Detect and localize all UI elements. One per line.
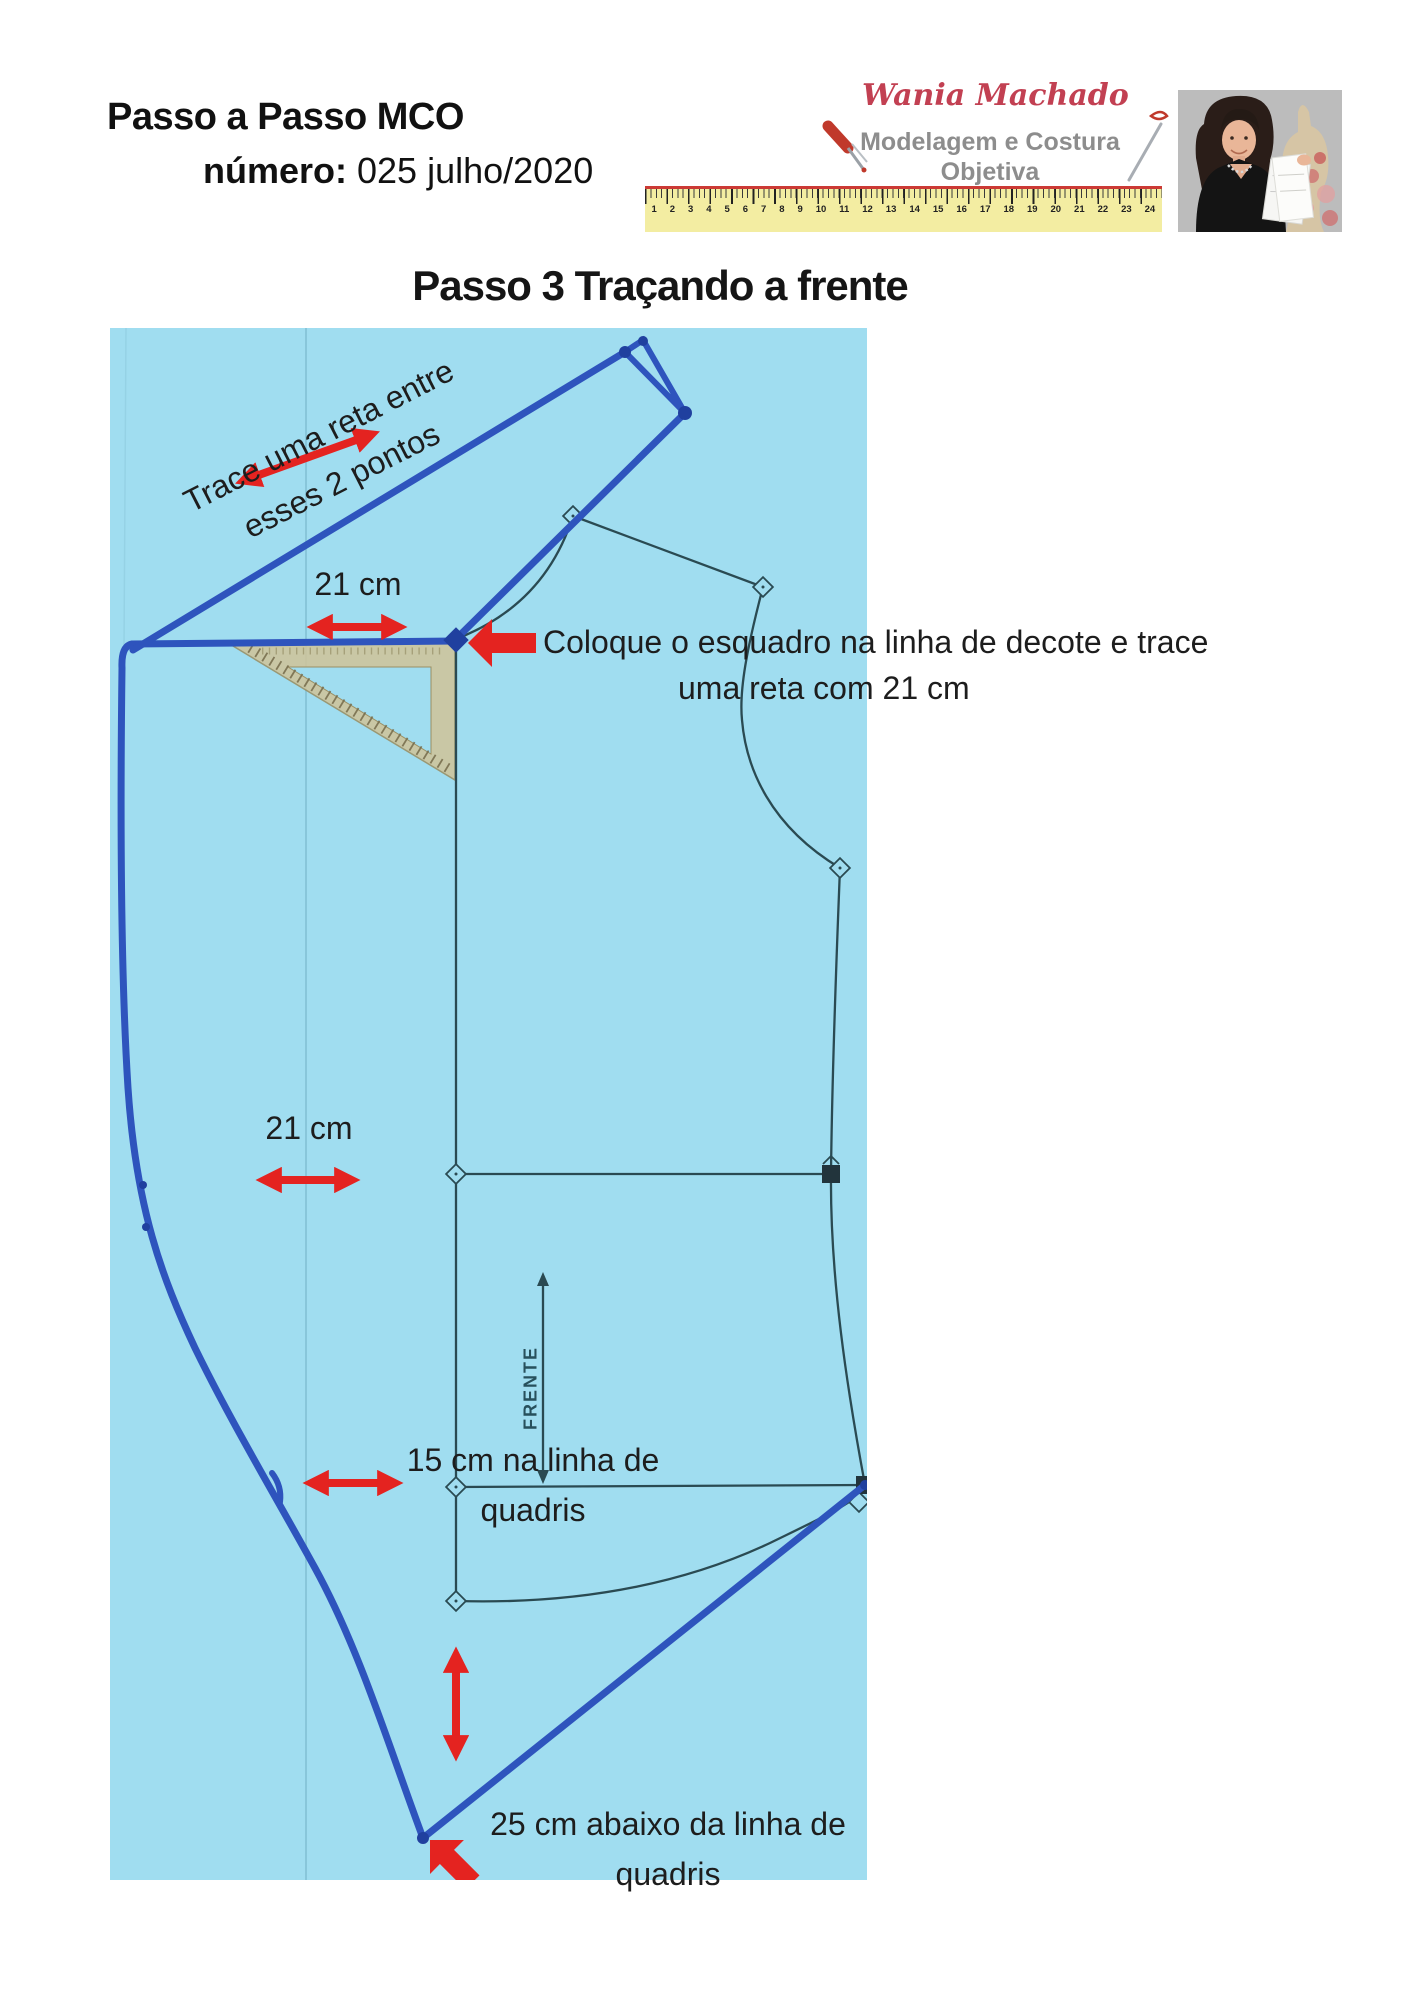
ruler-number: 3 (688, 204, 693, 215)
ruler-number: 23 (1121, 204, 1132, 215)
ruler-number: 17 (980, 204, 991, 215)
ruler-number: 21 (1074, 204, 1085, 215)
ruler-major-ticks (645, 189, 1162, 204)
page: { "header": { "title": "Passo a Passo MC… (0, 0, 1414, 2000)
logo-tagline-2: Objetiva (852, 158, 1128, 187)
ruler-numbers: 123456789101112131415161718192021222324 (645, 204, 1162, 215)
neck-and-left-side-line (121, 641, 456, 1838)
instructor-photo (1178, 90, 1342, 232)
set-square (228, 643, 455, 780)
annotation-esquadro-line2: uma reta com 21 cm (678, 670, 970, 707)
frente-arrowhead-up (537, 1272, 549, 1286)
ruler-number: 1 (651, 204, 656, 215)
step-title: Passo 3 Traçando a frente (340, 262, 980, 310)
annotation-15cm-line1: 15 cm na linha de (383, 1442, 683, 1479)
shoulder-line (573, 516, 763, 587)
annotation-25cm-line1: 25 cm abaixo da linha de (468, 1806, 868, 1843)
ruler-number: 11 (839, 204, 849, 215)
ruler-number: 16 (956, 204, 967, 215)
ruler-number: 24 (1145, 204, 1156, 215)
waist-square-marker (822, 1165, 840, 1183)
ruler-number: 2 (670, 204, 675, 215)
ruler-number: 4 (706, 204, 711, 215)
ruler-number: 10 (816, 204, 827, 215)
ruler-number: 5 (724, 204, 729, 215)
annotation-esquadro-line1: Coloque o esquadro na linha de decote e … (543, 624, 1208, 661)
annotation-15cm-line2: quadris (383, 1492, 683, 1529)
top-triangle (625, 340, 685, 413)
label-21cm-waist: 21 cm (250, 1110, 368, 1147)
logo-name: Wania Machado (862, 78, 1118, 113)
annotation-25cm-line2: quadris (468, 1856, 868, 1893)
ruler-number: 18 (1003, 204, 1014, 215)
ruler-number: 13 (886, 204, 897, 215)
logo-tagline-1: Modelagem e Costura (852, 128, 1128, 157)
ruler-number: 20 (1051, 204, 1062, 215)
ruler-graphic: 123456789101112131415161718192021222324 (645, 186, 1162, 232)
ruler-number: 14 (909, 204, 920, 215)
hip-to-hem-diagonal (423, 1485, 865, 1838)
solid-arrow-neck-point (468, 619, 536, 667)
instructor-hand (1297, 155, 1311, 166)
hip-line (456, 1485, 865, 1487)
ruler-number: 12 (862, 204, 873, 215)
frente-label: FRENTE (521, 1346, 542, 1430)
ruler-number: 19 (1027, 204, 1038, 215)
issue-number-value: 025 julho/2020 (357, 150, 593, 191)
red-arrows (245, 435, 456, 1751)
ruler-number: 7 (761, 204, 766, 215)
neckline-extension-line (456, 413, 685, 639)
marker-blobs (139, 336, 867, 1844)
ruler-number: 6 (743, 204, 748, 215)
needle-icon (1115, 108, 1170, 186)
ruler-number: 15 (933, 204, 944, 215)
issue-number-line: número: 025 julho/2020 (203, 150, 593, 192)
brand-title: Passo a Passo MCO (107, 96, 464, 139)
marker-lines (121, 340, 865, 1838)
ruler-number: 22 (1098, 204, 1109, 215)
ruler-number: 8 (779, 204, 784, 215)
issue-number-label: número: (203, 150, 347, 191)
ruler-number: 9 (797, 204, 802, 215)
label-21cm-top: 21 cm (296, 566, 420, 603)
